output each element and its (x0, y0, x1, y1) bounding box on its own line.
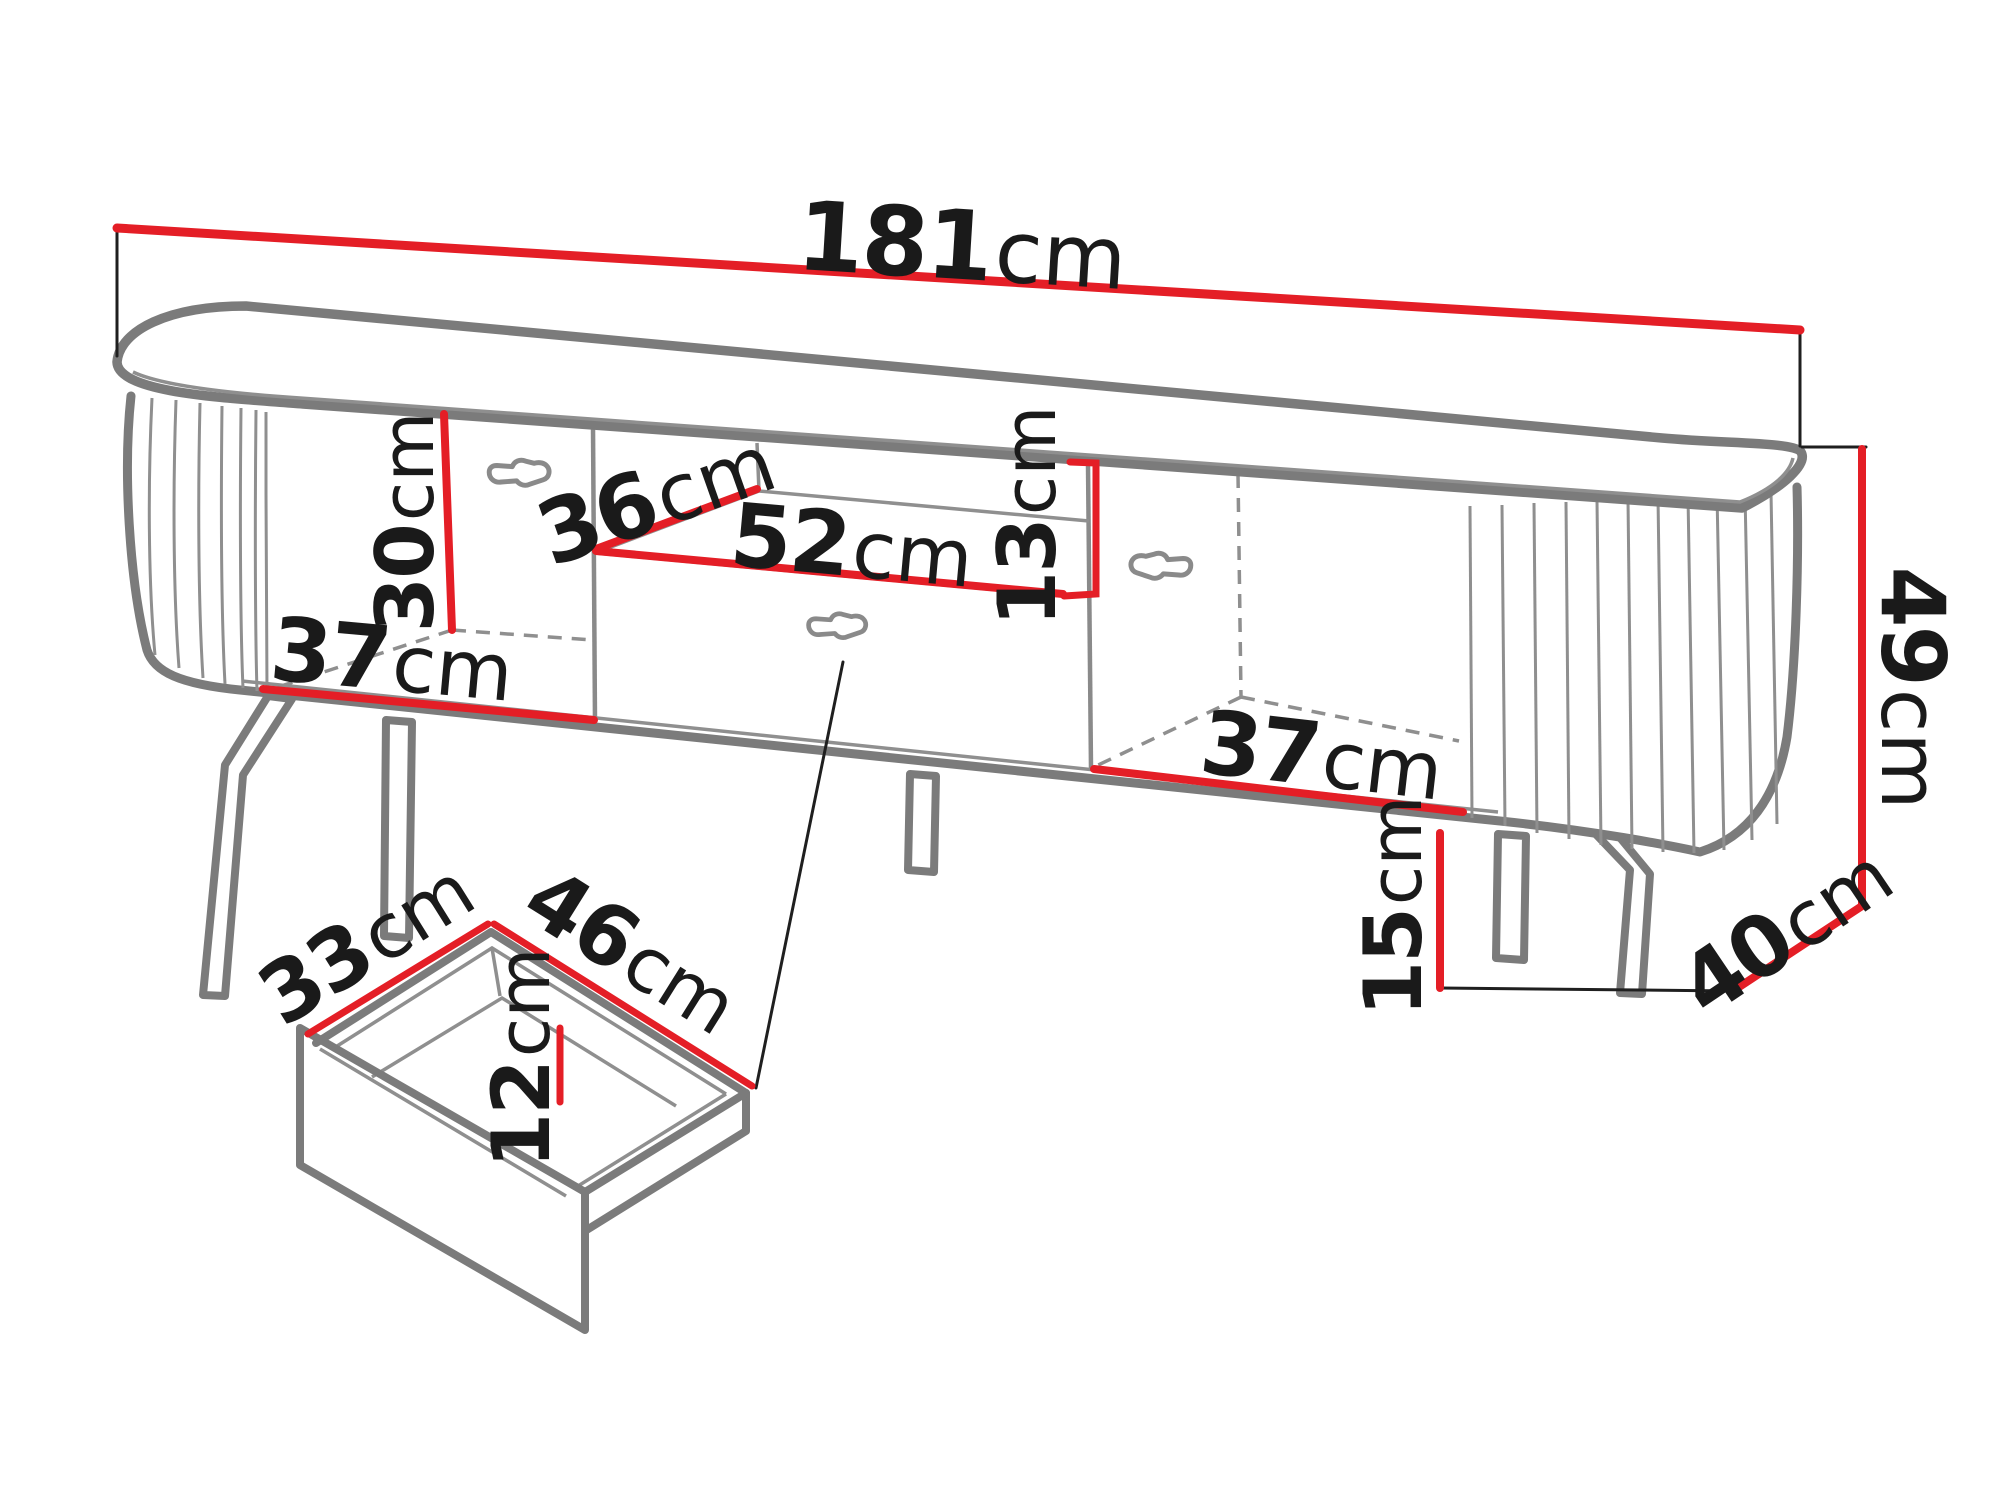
front-right-angled-leg (1588, 826, 1650, 994)
dim-width-label: 181cm (794, 188, 1129, 304)
center-back-leg (908, 774, 936, 872)
dim-legs-height-label: 15cm (1354, 795, 1434, 1016)
dim-side-inner-height-label: 30cm (366, 411, 446, 632)
right-door-handle-icon (1131, 553, 1191, 578)
left-door-handle-icon (489, 460, 549, 485)
door-partition-right (1088, 464, 1091, 768)
back-right-leg (1496, 834, 1526, 960)
dim-height-label: 49cm (1868, 566, 1956, 809)
dim-drawer-inner-height-label: 12cm (482, 947, 562, 1168)
furniture-dimension-diagram: 181cm 49cm 40cm 30cm 37cm 36cm 52cm 13cm… (0, 0, 2000, 1500)
dim-niche-height-label: 13cm (988, 405, 1068, 626)
drawer-handle-icon (809, 614, 866, 638)
